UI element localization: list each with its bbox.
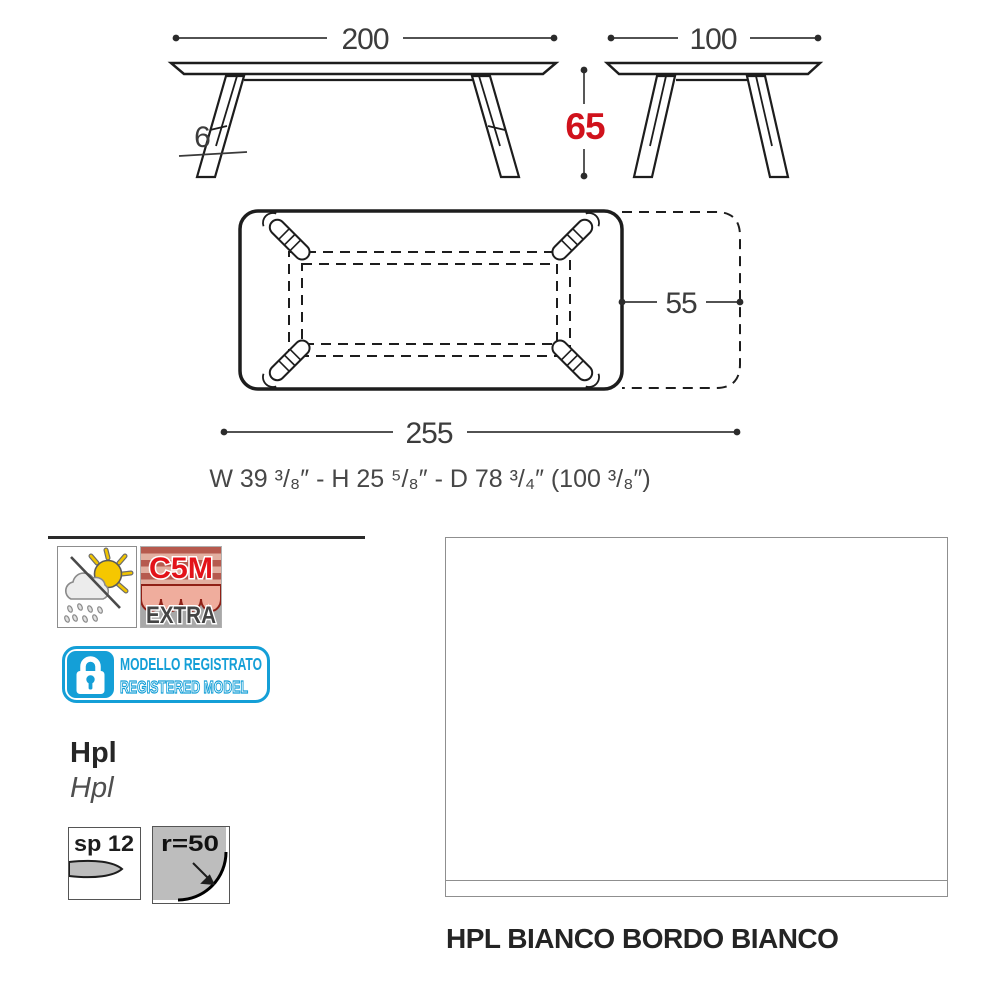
registered-line2: REGISTERED MODEL (120, 677, 248, 697)
imperial-dimensions: W 39 ³/₈″ - H 25 ⁵/₈″ - D 78 ³/₄″ (100 ³… (209, 465, 650, 493)
c5m-code: C5M (149, 552, 213, 585)
leg-bottom-right (548, 336, 602, 390)
section-divider (48, 536, 365, 539)
material-subtitle: Hpl (70, 772, 114, 805)
edge-profile-icon: sp 12 (69, 828, 139, 898)
awning-icon: C5M EXTRA (141, 547, 221, 627)
front-width-label: 200 (341, 23, 388, 56)
side-depth-label: 100 (689, 23, 736, 56)
leg-top-right (548, 210, 602, 264)
swatch-surface (446, 538, 947, 881)
thickness-label: sp 12 (74, 831, 134, 856)
side-view: 100 (607, 23, 821, 177)
finish-label: HPL BIANCO BORDO BIANCO (446, 923, 838, 955)
registered-model-svg: MODELLO REGISTRATO REGISTERED MODEL (62, 646, 270, 703)
total-length-label: 255 (405, 417, 452, 450)
product-spec-sheet: 200 6 65 (0, 0, 1000, 1000)
registered-model-badge: MODELLO REGISTRATO REGISTERED MODEL (62, 646, 270, 703)
top-thickness-label: 6 (194, 121, 210, 154)
c5m-variant: EXTRA (146, 602, 216, 627)
top-view: 55 255 (221, 210, 744, 450)
sun-cloud-rain-icon (58, 547, 135, 626)
corner-radius-icon: r=50 (153, 827, 228, 902)
technical-drawing: 200 6 65 (0, 0, 1000, 525)
leg-top-left (260, 210, 314, 264)
extension-depth-label: 55 (665, 287, 697, 320)
leg-bottom-left (260, 336, 314, 390)
material-title: Hpl (70, 737, 117, 770)
finish-swatch[interactable] (445, 537, 948, 897)
outdoor-use-badge (57, 546, 137, 628)
c5m-extra-badge: C5M EXTRA (140, 546, 222, 628)
front-view: 200 6 65 (171, 23, 605, 179)
front-height-label: 65 (565, 106, 605, 147)
corner-radius-badge: r=50 (152, 826, 230, 904)
registered-line1: MODELLO REGISTRATO (120, 654, 262, 674)
top-thickness-badge: sp 12 (68, 827, 141, 900)
radius-label: r=50 (161, 831, 219, 856)
